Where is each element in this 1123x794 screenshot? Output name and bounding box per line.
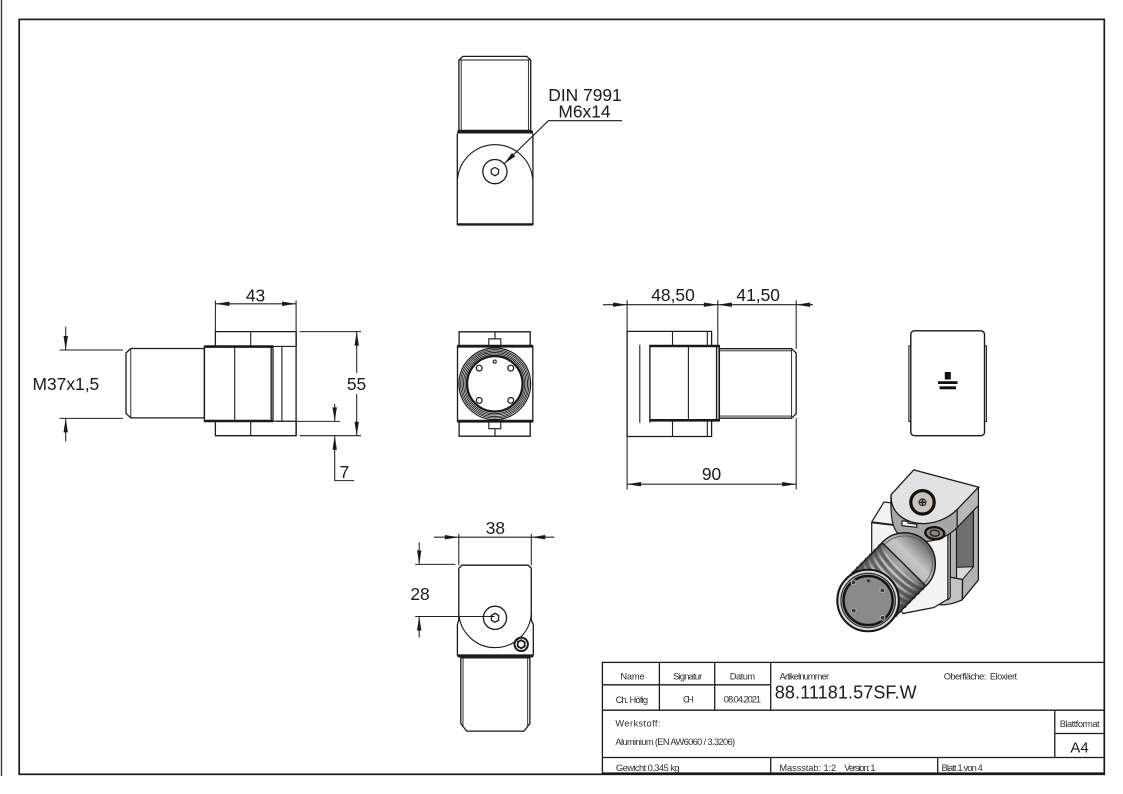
svg-text:Artikelnummer: Artikelnummer — [780, 672, 830, 682]
svg-text:Signatur: Signatur — [673, 672, 702, 682]
svg-text:Blattformat: Blattformat — [1060, 719, 1100, 729]
svg-text:Ch. Höfig: Ch. Höfig — [616, 695, 649, 705]
svg-text:55: 55 — [347, 374, 366, 394]
svg-text:A4: A4 — [1070, 740, 1088, 757]
svg-text:Oberfläche: Eloxiert: Oberfläche: Eloxiert — [944, 672, 1018, 682]
svg-text:7: 7 — [340, 462, 350, 482]
svg-text:43: 43 — [246, 286, 265, 306]
svg-text:Massstab: 1:2: Massstab: 1:2 — [779, 763, 836, 773]
svg-text:88.11181.57SF.W: 88.11181.57SF.W — [775, 682, 917, 702]
svg-text:28: 28 — [410, 584, 429, 604]
svg-text:CH: CH — [683, 695, 694, 705]
svg-text:Gewicht 0.345 kg: Gewicht 0.345 kg — [616, 763, 680, 773]
svg-text:Aluminium (EN AW6060 / 3.3206): Aluminium (EN AW6060 / 3.3206) — [615, 737, 735, 747]
svg-text:41,50: 41,50 — [736, 285, 780, 305]
svg-text:48,50: 48,50 — [651, 285, 695, 305]
svg-text:M6x14: M6x14 — [558, 102, 611, 122]
svg-text:Blatt 1 von 4: Blatt 1 von 4 — [942, 763, 983, 773]
svg-text:Version: 1: Version: 1 — [844, 763, 875, 773]
svg-text:90: 90 — [702, 464, 721, 484]
svg-text:Datum: Datum — [730, 672, 756, 682]
svg-text:Werkstoff:: Werkstoff: — [615, 719, 660, 729]
svg-text:08.04.2021: 08.04.2021 — [724, 695, 761, 705]
svg-text:M37x1,5: M37x1,5 — [33, 374, 100, 394]
svg-text:Name: Name — [620, 672, 644, 682]
svg-text:38: 38 — [486, 518, 505, 538]
